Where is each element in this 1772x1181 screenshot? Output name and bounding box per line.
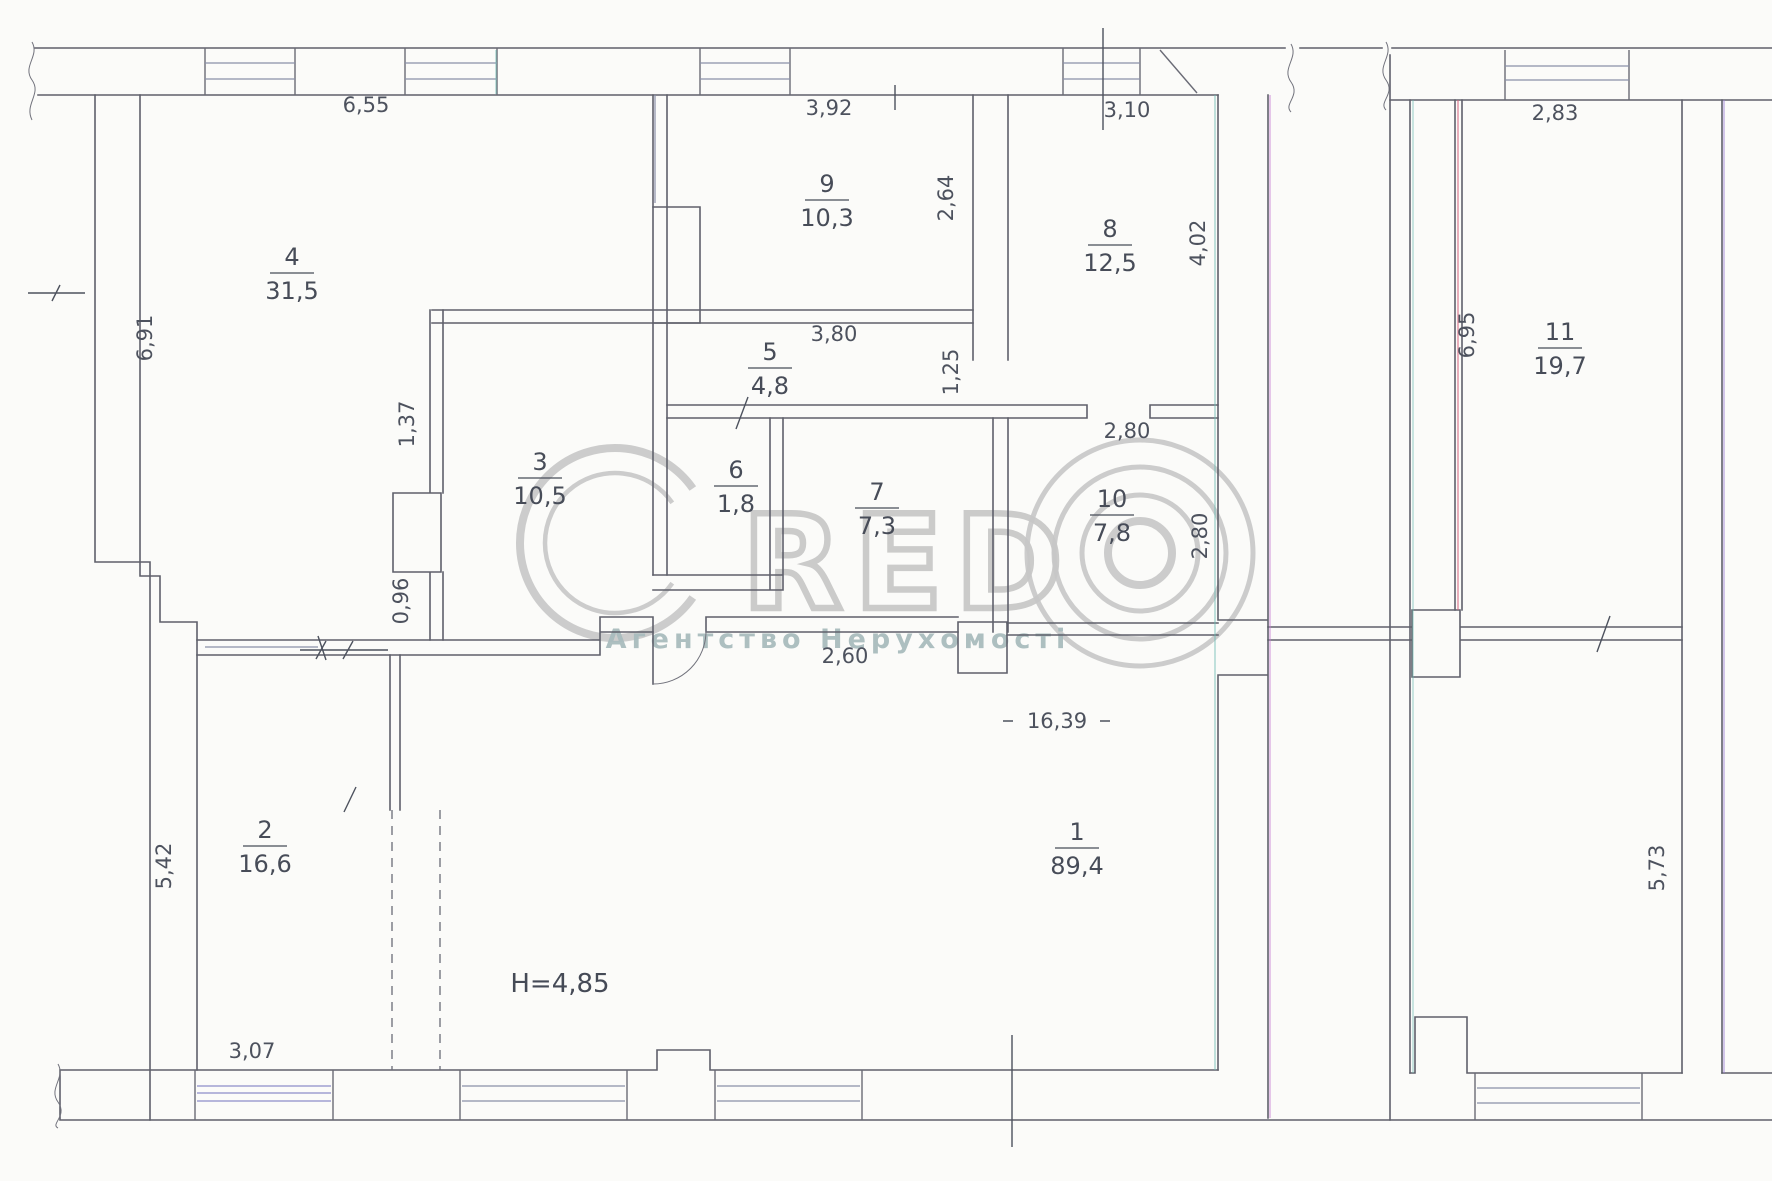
room-label-2: 2 16,6 [238,816,291,878]
room-label-1: 1 89,4 [1050,818,1103,880]
dim-room1-width: 16,39 [1027,709,1087,733]
room-1-area: 89,4 [1050,852,1103,880]
dashed-wall [392,810,440,1070]
floor-plan-drawing: RED Агентство Нерухомості [0,0,1772,1181]
dim-room8-width: 3,10 [1104,98,1151,122]
dim-room9-height: 2,64 [934,175,958,222]
room-4-number: 4 [284,243,299,271]
dim-room9-width: 3,92 [806,96,853,120]
room-3-area: 10,5 [513,482,566,510]
room-label-4: 4 31,5 [265,243,318,305]
dim-room11-height: 6,95 [1455,312,1479,359]
ceiling-height-note: H=4,85 [510,969,609,999]
floor-plan: RED Агентство Нерухомості [0,0,1772,1181]
dim-room4-height: 6,91 [133,315,157,362]
room-9-number: 9 [819,170,834,198]
room-10-number: 10 [1097,485,1128,513]
dim-wall-seg-upper: 1,37 [395,401,419,448]
wall-break-marks [29,42,1389,1128]
room-5-area: 4,8 [751,372,789,400]
dim-right-lower-height: 5,73 [1645,845,1669,892]
room-6-area: 1,8 [717,490,755,518]
dim-room8-height: 4,02 [1186,220,1210,267]
room-4-area: 31,5 [265,277,318,305]
room-8-number: 8 [1102,215,1117,243]
room-9-area: 10,3 [800,204,853,232]
room-label-5: 5 4,8 [748,338,792,400]
interior-walls [197,95,1218,810]
room-10-area: 7,8 [1093,519,1131,547]
room-label-11: 11 19,7 [1533,318,1586,380]
dim-room4-width: 6,55 [343,93,390,117]
room-label-8: 8 12,5 [1083,215,1136,277]
dim-room10-height: 2,80 [1188,513,1212,560]
room-6-number: 6 [728,456,743,484]
dim-room11-width: 2,83 [1532,101,1579,125]
room-5-number: 5 [762,338,777,366]
dim-corridor7-width: 2,60 [822,644,869,668]
room-1-number: 1 [1069,818,1084,846]
room-2-area: 16,6 [238,850,291,878]
dim-room10-width: 2,80 [1104,419,1151,443]
room-2-number: 2 [257,816,272,844]
dim-corridor-width: 1,25 [939,349,963,396]
room-7-number: 7 [869,478,884,506]
dim-room2-width: 3,07 [229,1039,276,1063]
dim-room9-width-bottom: 3,80 [811,322,858,346]
dim-wall-seg-lower: 0,96 [389,578,413,625]
room-8-area: 12,5 [1083,249,1136,277]
room-11-area: 19,7 [1533,352,1586,380]
room-7-area: 7,3 [858,512,896,540]
room-3-number: 3 [532,448,547,476]
room-11-number: 11 [1545,318,1576,346]
dim-room2-height: 5,42 [152,843,176,890]
scan-artifact-lines [496,50,1724,1118]
room-label-9: 9 10,3 [800,170,853,232]
